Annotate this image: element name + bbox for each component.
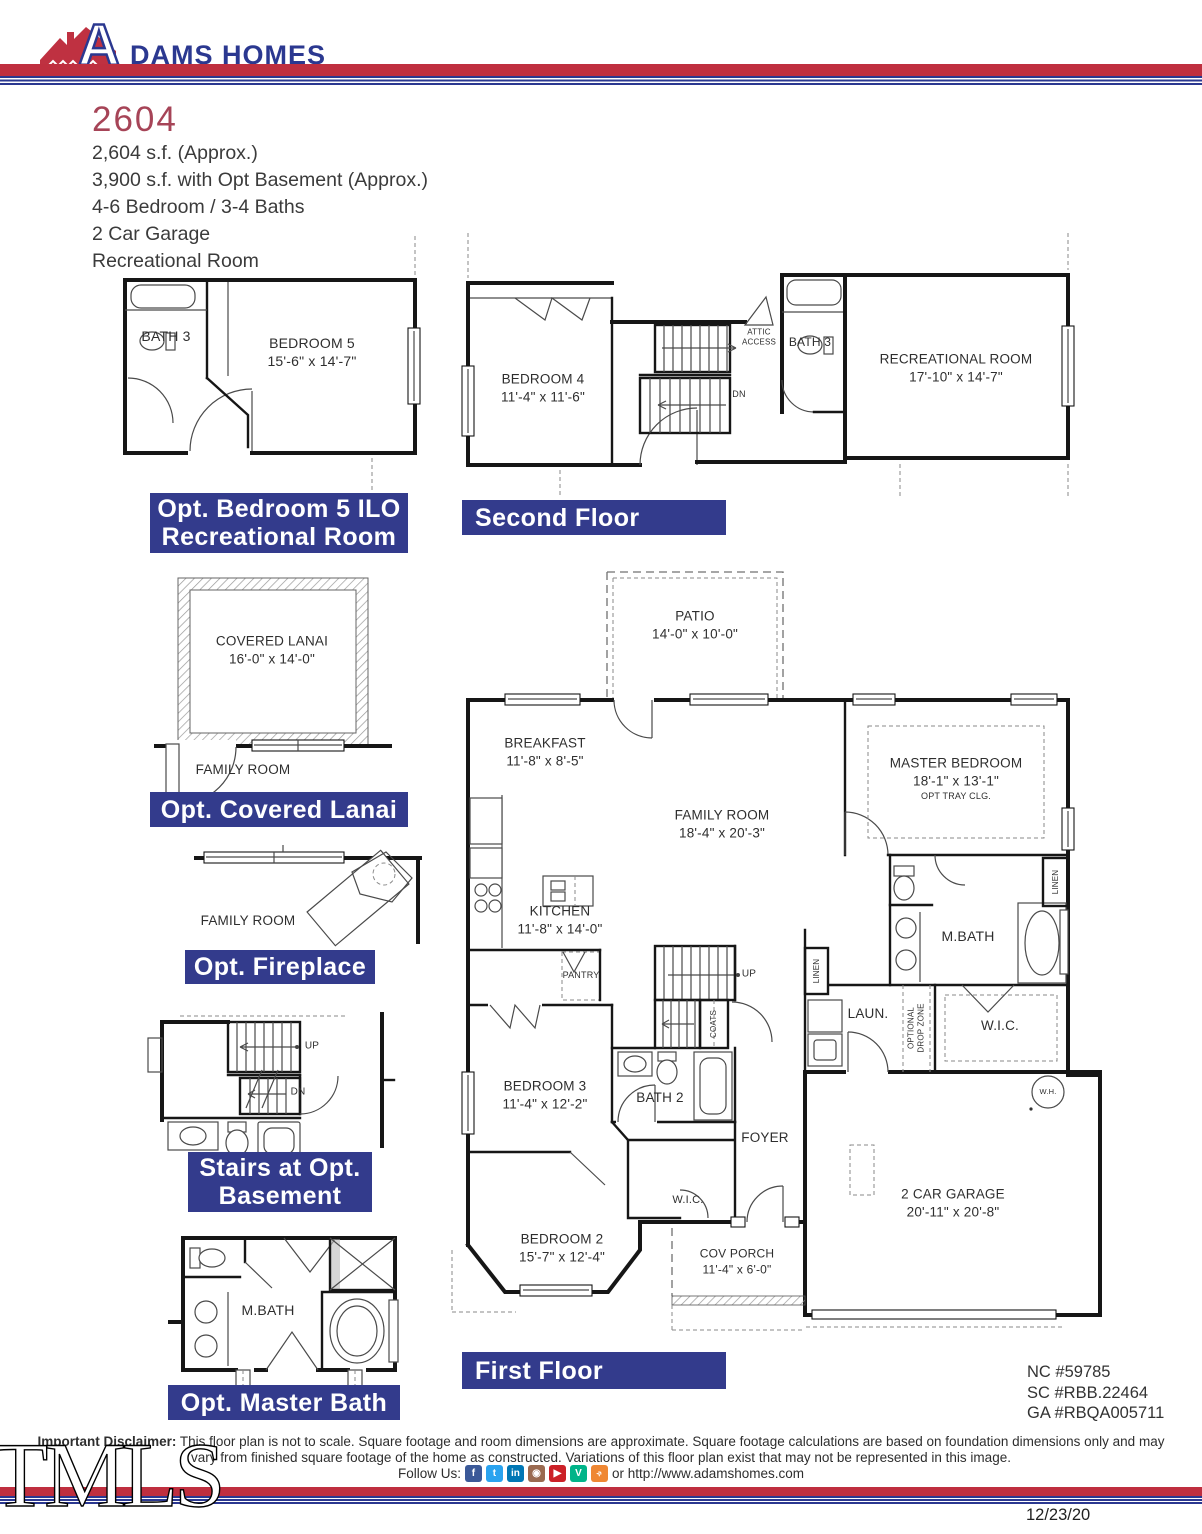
- room-label-bath3-optb5: BATH 3: [141, 327, 190, 345]
- follow-label: Follow Us:: [398, 1466, 461, 1481]
- room-label-bedroom3: BEDROOM 3 11'-4" x 12'-2": [502, 1077, 587, 1112]
- closet-label-linen-master: LINEN: [1051, 870, 1061, 895]
- rss-icon: »: [591, 1465, 608, 1482]
- instagram-icon: ◉: [528, 1465, 545, 1482]
- banner-stairs-basement: Stairs at Opt. Basement: [188, 1152, 372, 1212]
- room-label-laundry: LAUN.: [848, 1005, 889, 1023]
- room-label-master-tray: OPT TRAY CLG.: [921, 791, 991, 803]
- room-label-garage: 2 CAR GARAGE 20'-11" x 20'-8": [901, 1185, 1005, 1220]
- room-label-patio: PATIO 14'-0" x 10'-0": [652, 607, 738, 642]
- banner-opt-master-bath: Opt. Master Bath: [168, 1385, 400, 1420]
- stair-label-up-1f: UP: [742, 968, 756, 981]
- room-label-breakfast: BREAKFAST 11'-8" x 8'-5": [504, 734, 585, 769]
- room-label-master-bedroom: MASTER BEDROOM 18'-1" x 13'-1": [890, 754, 1023, 789]
- room-label-mbath: M.BATH: [941, 927, 994, 945]
- room-label-cov-porch: COV PORCH 11'-4" x 6'-0": [700, 1246, 774, 1277]
- label-water-heater: W.H.: [1039, 1087, 1056, 1097]
- banner-first-floor: First Floor: [462, 1352, 726, 1389]
- twitter-icon: t: [486, 1465, 503, 1482]
- closet-label-linen-laundry: LINEN: [812, 959, 822, 984]
- disclaimer-text: This floor plan is not to scale. Square …: [176, 1434, 1164, 1465]
- room-label-bedroom2: BEDROOM 2 15'-7" x 12'-4": [519, 1230, 605, 1265]
- banner-opt-bedroom5: Opt. Bedroom 5 ILO Recreational Room: [150, 493, 408, 553]
- room-label-bedroom5: BEDROOM 5 15'-6" x 14'-7": [267, 334, 356, 370]
- license-numbers: NC #59785 SC #RBB.22464 GA #RBQA005711: [1027, 1362, 1164, 1424]
- banner-opt-covered-lanai: Opt. Covered Lanai: [150, 792, 408, 827]
- tmls-watermark: TMLS: [0, 1436, 221, 1514]
- website-url: or http://www.adamshomes.com: [612, 1466, 804, 1481]
- revision-date: 12/23/20: [1026, 1506, 1090, 1525]
- facebook-icon: f: [465, 1465, 482, 1482]
- linkedin-icon: in: [507, 1465, 524, 1482]
- stair-label-dn-2f: DN: [732, 389, 745, 401]
- label-optional-drop-zone: OPTIONAL DROP ZONE: [907, 1003, 928, 1052]
- room-label-foyer: FOYER: [741, 1129, 789, 1147]
- room-label-covered-lanai: COVERED LANAI 16'-0" x 14'-0": [216, 632, 328, 667]
- room-label-bedroom4: BEDROOM 4 11'-4" x 11'-6": [501, 370, 585, 405]
- room-label-pantry: PANTRY: [563, 970, 600, 982]
- stair-label-up-basement: UP: [305, 1040, 319, 1053]
- floorplan-sheet: A DAMS HOMES 2604 2,604 s.f. (Approx.) 3…: [0, 0, 1202, 1534]
- stair-label-dn-basement: DN: [291, 1086, 306, 1099]
- room-label-family-room-lanai: FAMILY ROOM: [196, 761, 291, 779]
- room-label-attic-access: ATTIC ACCESS: [742, 328, 776, 349]
- closet-label-coats: COATS: [709, 1010, 719, 1038]
- banner-second-floor: Second Floor: [462, 500, 726, 535]
- room-label-family-room: FAMILY ROOM 18'-4" x 20'-3": [675, 806, 770, 841]
- room-label-wic-master: W.I.C.: [981, 1017, 1019, 1035]
- vine-icon: V: [570, 1465, 587, 1482]
- room-label-recreational-room: RECREATIONAL ROOM 17'-10" x 14'-7": [880, 350, 1033, 385]
- banner-opt-fireplace: Opt. Fireplace: [185, 950, 375, 984]
- room-label-mbath-opt: M.BATH: [241, 1301, 294, 1319]
- room-label-bath3-2f: BATH 3: [789, 335, 831, 351]
- plan-stairs-basement: [148, 1014, 394, 1156]
- youtube-icon: ▶: [549, 1465, 566, 1482]
- room-label-kitchen: KITCHEN 11'-8" x 14'-0": [517, 902, 602, 937]
- room-label-family-room-fireplace: FAMILY ROOM: [201, 912, 296, 930]
- plan-opt-fireplace: [196, 845, 420, 946]
- room-label-wic-bedroom2: W.I.C.: [672, 1193, 703, 1207]
- room-label-bath2: BATH 2: [636, 1089, 683, 1107]
